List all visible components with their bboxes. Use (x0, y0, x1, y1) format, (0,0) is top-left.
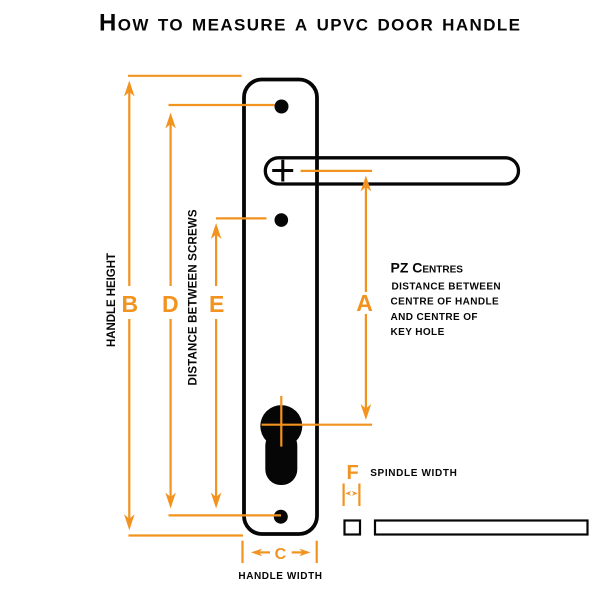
svg-text:CENTRE OF HANDLE: CENTRE OF HANDLE (391, 297, 500, 308)
svg-text:DISTANCE BETWEEN SCREWS: DISTANCE BETWEEN SCREWS (188, 209, 200, 385)
svg-text:B: B (121, 291, 138, 317)
svg-text:AND CENTRE OF: AND CENTRE OF (391, 312, 478, 323)
svg-text:HANDLE HEIGHT: HANDLE HEIGHT (106, 253, 118, 347)
svg-text:KEY HOLE: KEY HOLE (391, 327, 445, 338)
svg-text:C: C (275, 546, 287, 563)
svg-text:How to measure a upvc door han: How to measure a upvc door handle (99, 10, 520, 37)
svg-text:SPINDLE WIDTH: SPINDLE WIDTH (370, 468, 457, 479)
svg-text:E: E (209, 291, 224, 317)
svg-text:D: D (162, 291, 179, 317)
svg-text:F: F (346, 462, 358, 484)
svg-text:PZ Centres: PZ Centres (391, 260, 464, 276)
svg-text:A: A (356, 290, 373, 316)
svg-text:DISTANCE BETWEEN: DISTANCE BETWEEN (392, 281, 502, 292)
svg-text:HANDLE WIDTH: HANDLE WIDTH (238, 571, 322, 582)
